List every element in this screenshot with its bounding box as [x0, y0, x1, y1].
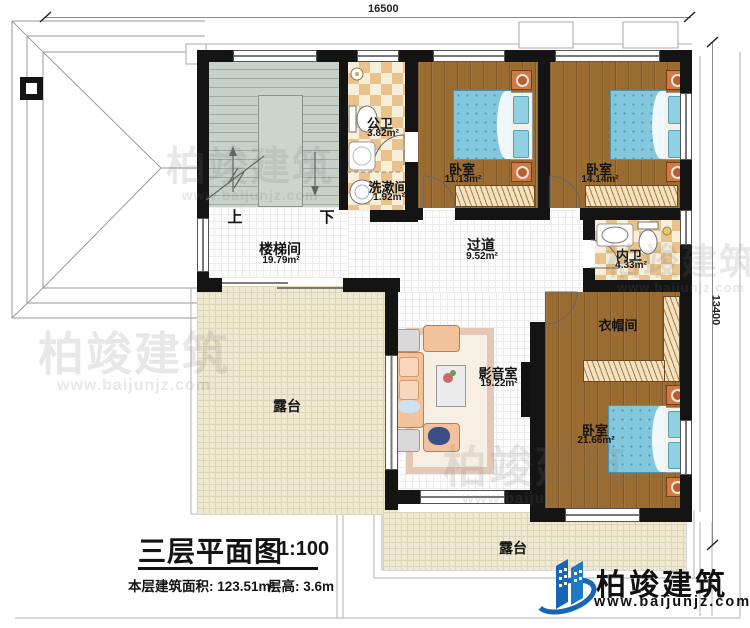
wall — [197, 50, 209, 218]
floor-area-text: 本层建筑面积: 123.51m² — [128, 575, 275, 595]
window — [433, 50, 505, 62]
wall — [197, 278, 222, 292]
nightstand — [511, 70, 532, 90]
stair-landing — [258, 95, 303, 207]
wall — [538, 62, 550, 220]
bed-blanket-fold — [652, 91, 666, 159]
nightstand — [511, 162, 532, 182]
window — [385, 355, 398, 470]
room-label-terrace-left: 露台 — [273, 396, 301, 416]
window — [680, 420, 692, 475]
wall — [583, 220, 595, 240]
dimension-right: 13400 — [709, 295, 721, 326]
window — [357, 50, 399, 62]
wall — [680, 160, 692, 210]
dimension-line-right — [712, 42, 713, 545]
wall — [418, 208, 423, 220]
window — [555, 50, 660, 62]
room-area-inner-bath: 4.33m² — [615, 260, 647, 271]
wall — [343, 278, 400, 292]
wall — [385, 490, 420, 504]
sofa-cushion — [399, 357, 419, 377]
closet-rail — [583, 360, 665, 382]
room-area-media-room: 19.22m² — [480, 378, 517, 389]
wardrobe — [455, 185, 535, 207]
window — [420, 490, 505, 504]
wall — [680, 245, 692, 420]
wall — [530, 322, 545, 508]
title-underline — [138, 567, 318, 570]
sofa-seat — [423, 325, 460, 352]
pillow — [513, 96, 529, 124]
stair-up-label: 上 — [227, 206, 242, 227]
bed-blanket-fold — [497, 91, 511, 159]
brand-logo-icon — [534, 550, 598, 622]
window — [565, 508, 640, 522]
bay-eave-left — [519, 22, 573, 48]
doorway-floor — [530, 292, 545, 322]
room-label-terrace-bottom: 露台 — [499, 538, 527, 558]
plan-scale: 1:100 — [278, 538, 329, 561]
room-area-bedroom2: 14.14m² — [581, 174, 618, 185]
person-figure — [428, 427, 450, 445]
window — [680, 210, 692, 245]
wall — [317, 50, 357, 62]
room-area-wash-room: 1.92m² — [373, 192, 405, 203]
wall — [580, 208, 692, 220]
pillow — [513, 130, 529, 158]
wall — [455, 208, 538, 220]
floor-plan-canvas: 16500 13400 公卫 3.82m² 洗漱间 1.92m² 卧室 11.1… — [0, 0, 750, 628]
bay-eave-right — [623, 22, 678, 48]
wall — [680, 50, 692, 93]
wall — [583, 280, 680, 292]
room-area-bedroom3: 21.66m² — [577, 435, 614, 446]
wall — [530, 508, 565, 522]
room-area-corridor: 9.52m² — [466, 251, 498, 262]
closet-rail — [663, 296, 680, 382]
wall — [505, 50, 555, 62]
chimney-icon — [20, 77, 43, 100]
window — [680, 93, 692, 160]
dimension-line-top — [45, 17, 691, 18]
room-area-bedroom1: 11.13m² — [445, 174, 482, 185]
window — [197, 218, 209, 272]
wall — [370, 210, 418, 222]
wall — [640, 508, 692, 522]
person-figure — [398, 400, 420, 413]
coffee-table — [436, 365, 466, 407]
wardrobe — [585, 185, 678, 207]
brand-url: www.baijunjz.com — [594, 594, 750, 610]
room-label-cloak-room: 衣帽间 — [598, 315, 637, 334]
dimension-top: 16500 — [368, 3, 399, 15]
window — [233, 50, 317, 62]
room-area-public-bath: 3.82m² — [367, 128, 399, 139]
bed-blanket-fold — [652, 406, 666, 472]
floor-height-text: 层高: 3.6m — [268, 575, 334, 595]
wall — [385, 292, 398, 355]
room-area-stair-hall: 19.79m² — [262, 255, 299, 266]
plan-title: 三层平面图 — [138, 530, 283, 570]
sofa-cushion — [399, 380, 419, 400]
wall — [339, 50, 348, 210]
wall — [405, 50, 418, 132]
stair-down-label: 下 — [319, 206, 334, 227]
